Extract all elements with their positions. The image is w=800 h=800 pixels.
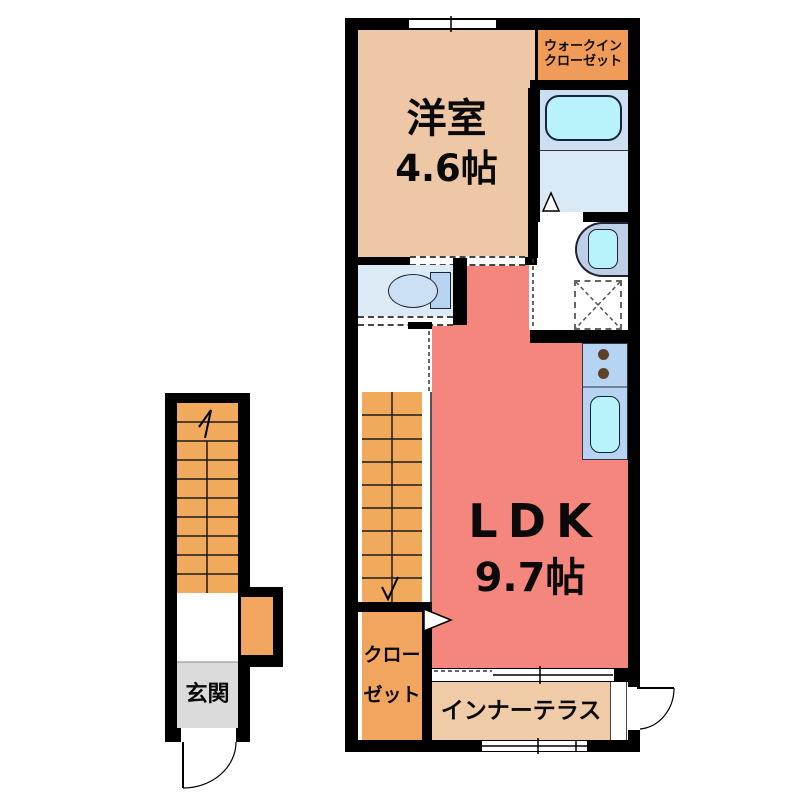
walk-in-closet-label-2: クローゼット: [544, 55, 622, 70]
toilet-right-wall: [453, 258, 467, 325]
kitchen-sink: [590, 396, 620, 453]
terrace-door: [637, 688, 674, 729]
washroom-top-wall: [583, 212, 628, 222]
ldk-size: 9.7帖: [475, 555, 586, 601]
western-room-size: 4.6帖: [395, 148, 498, 191]
closet-label-2: ゼット: [363, 685, 420, 707]
bathroom-floor: [540, 150, 628, 212]
wic-bottom-wall: [530, 80, 640, 90]
entrance-genkan: 玄関: [177, 662, 238, 728]
bottom-window: [482, 740, 587, 752]
ldk-label-block: LDK 9.7帖: [432, 486, 628, 610]
washing-machine-pan: [574, 280, 622, 330]
hall-wall-stub: [408, 322, 432, 329]
closet: クロー ゼット: [362, 612, 422, 740]
top-window: [409, 19, 496, 29]
inner-terrace: インナーテラス: [432, 682, 610, 740]
kitchen-top-wall: [530, 330, 640, 343]
stairs-upper: [362, 392, 422, 602]
stairs-lower: [177, 403, 238, 593]
shoe-storage: [241, 597, 273, 655]
walk-in-closet-label-1: ウォークイン: [544, 40, 622, 55]
bathtub: [545, 95, 622, 141]
closet-right-wall: [422, 612, 432, 740]
stairs-bottom-wall: [358, 602, 432, 612]
terrace-door-gap: [627, 687, 640, 730]
terrace-sliding-window: [432, 668, 614, 682]
stove-burner-1: [598, 349, 609, 360]
stair-landing: [177, 593, 238, 662]
terrace-window-end-wall: [614, 668, 628, 682]
walk-in-closet: ウォークイン クローゼット: [538, 30, 628, 80]
ldk-name: LDK: [468, 495, 602, 548]
stove-burner-2: [598, 368, 609, 379]
western-room-name: 洋室: [407, 96, 487, 142]
terrace-side-glass: [610, 682, 627, 740]
vanity-basin: [588, 229, 618, 269]
entrance-door: [183, 742, 236, 788]
washroom-sliding-door: [529, 258, 538, 330]
floor-plan: 洋室 4.6帖 ウォークイン クローゼット クロー ゼット: [0, 0, 800, 800]
bathroom-door-threshold: [540, 212, 583, 222]
toilet-sliding-door: [358, 316, 453, 326]
inner-terrace-label: インナーテラス: [441, 698, 602, 724]
western-room: 洋室 4.6帖: [358, 30, 535, 257]
entrance-label: 玄関: [185, 682, 229, 707]
closet-label-1: クロー: [363, 645, 420, 667]
entrance-door-gap: [181, 728, 236, 742]
toilet-bowl: [388, 274, 438, 308]
